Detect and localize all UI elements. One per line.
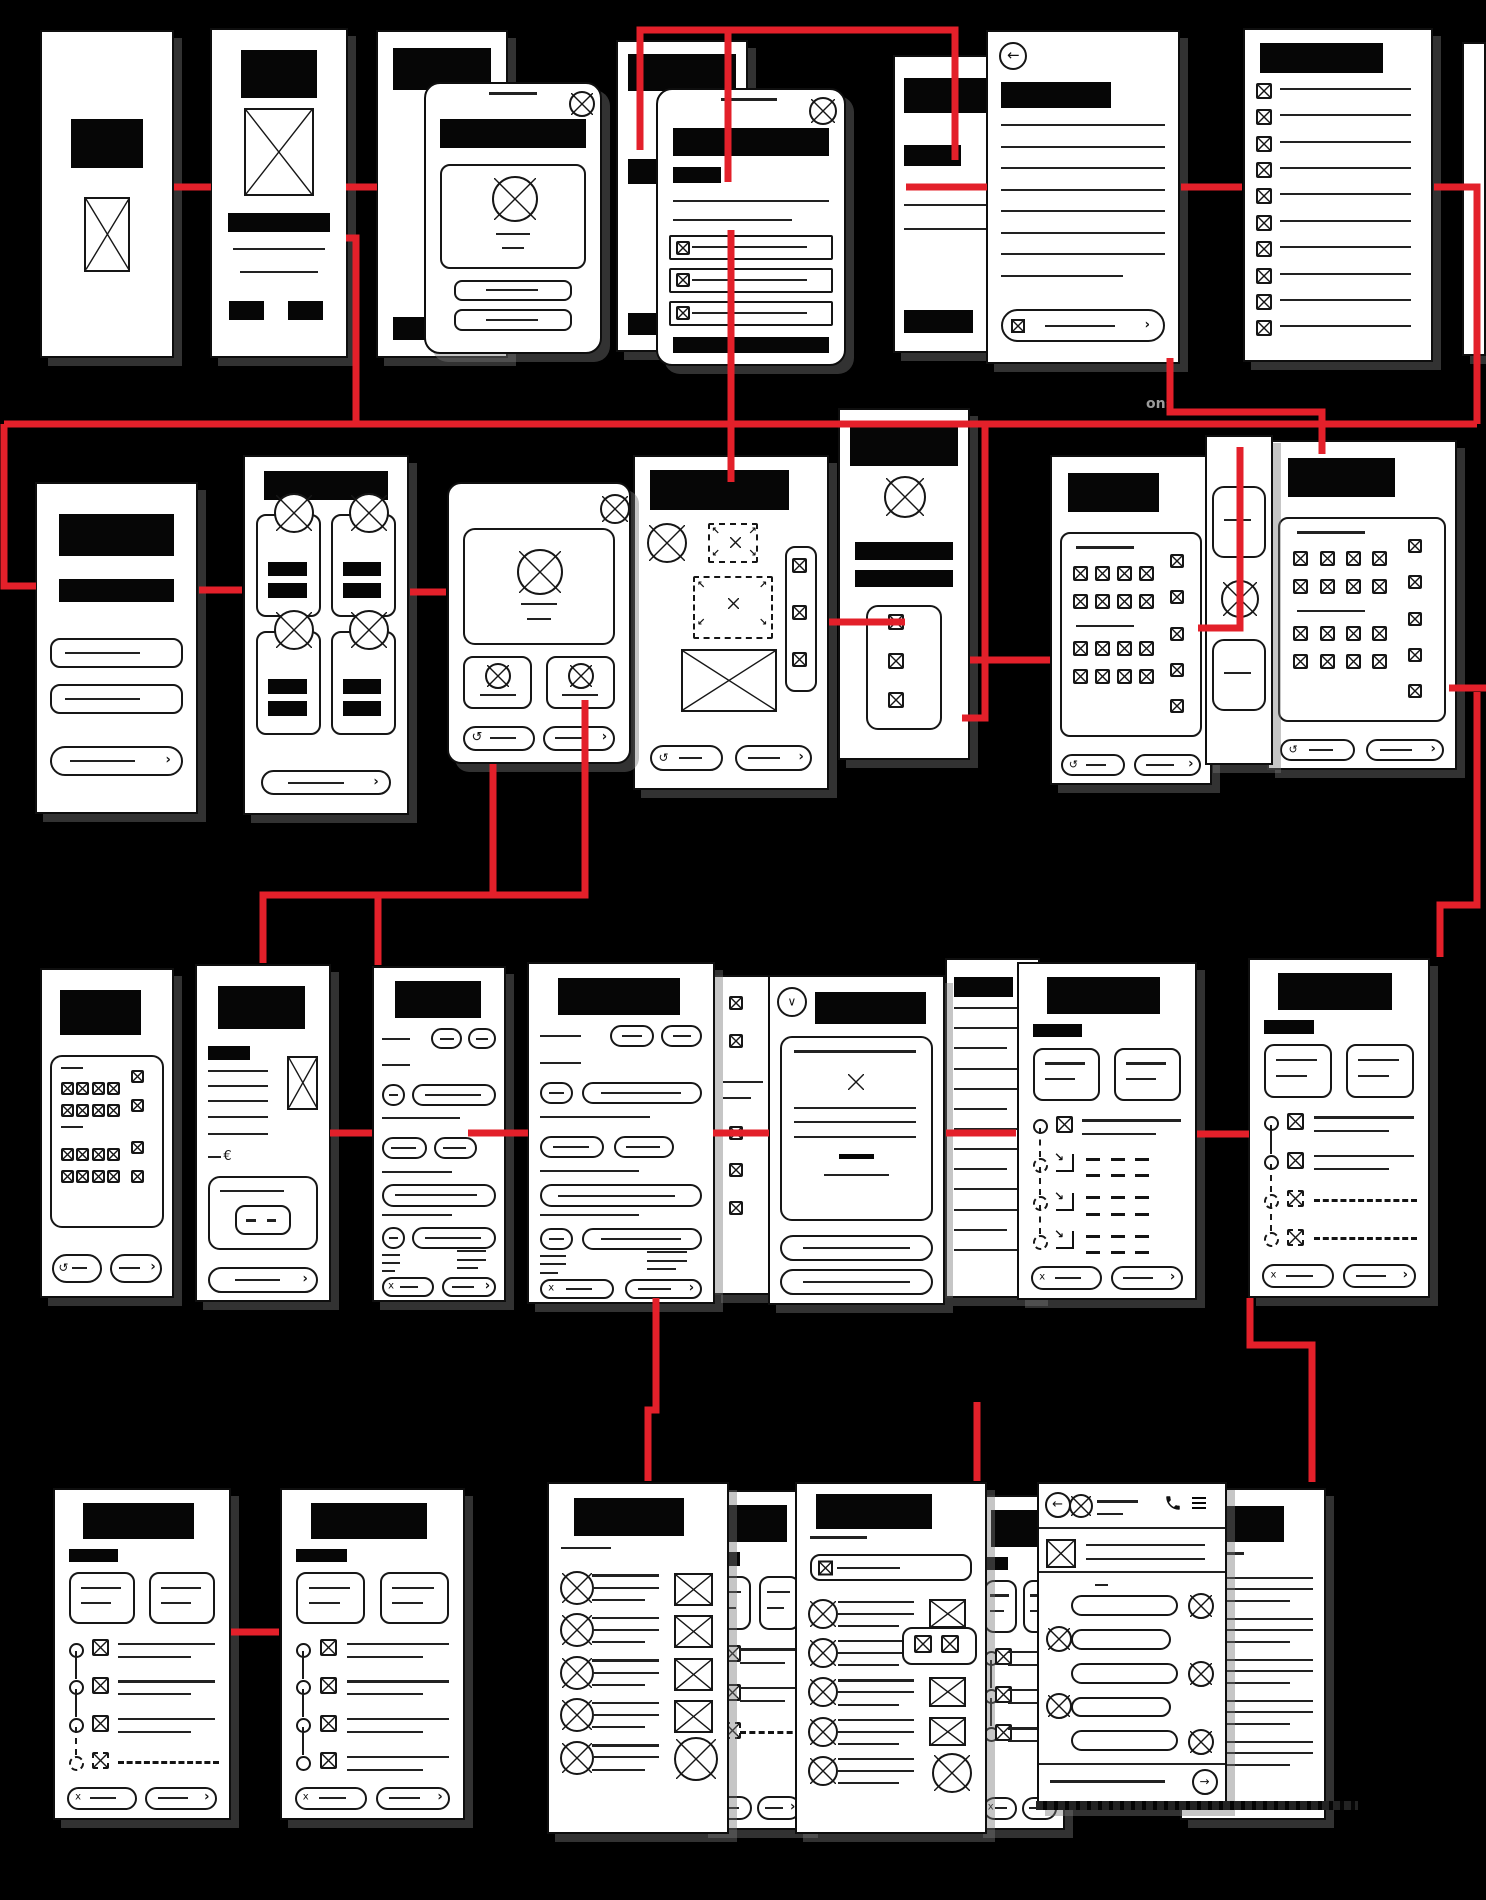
corner-arrow-icon: ↗ (759, 581, 767, 591)
chip-button[interactable] (434, 1137, 477, 1159)
x-mark (109, 1150, 118, 1159)
checkbox-row[interactable] (669, 268, 833, 293)
next-button[interactable]: › (1134, 754, 1200, 777)
x-box-icon (1320, 551, 1335, 566)
text-line (954, 1229, 1007, 1231)
x-mark (1190, 1663, 1212, 1685)
x-mark (289, 1058, 317, 1107)
avatar-icon (808, 1717, 838, 1747)
screen-chat[interactable]: ←→ (1037, 1482, 1227, 1808)
undo-button[interactable]: ↺ (1280, 739, 1354, 762)
x-mark (1348, 656, 1359, 667)
dashed-line (1314, 1199, 1417, 1202)
button-line (601, 1238, 682, 1240)
text-line (794, 1050, 916, 1053)
icon-glyph: ← (1052, 1498, 1063, 1511)
text-line (118, 1680, 215, 1683)
back-icon[interactable]: ← (1045, 1492, 1071, 1518)
screen-stepper-d[interactable]: x› (280, 1488, 465, 1820)
modal-item-preview[interactable]: ↺› (447, 482, 631, 764)
info-card (69, 1572, 135, 1624)
text-line (1001, 146, 1164, 148)
cancel-button[interactable]: x (382, 1277, 434, 1297)
avatar-icon (647, 523, 687, 563)
image-placeholder-icon (929, 1599, 967, 1629)
cancel-button[interactable]: x (295, 1787, 367, 1810)
text-line (838, 1704, 898, 1706)
x-box-icon (729, 1126, 743, 1140)
dash-segment (1135, 1196, 1149, 1199)
black-block (241, 50, 316, 99)
text-line (838, 1782, 898, 1784)
x-mark (1258, 217, 1270, 229)
step-connector (302, 1727, 304, 1755)
x-box-icon (1095, 641, 1110, 656)
screen-icon-grid-small[interactable]: ↺› (40, 968, 174, 1298)
dash-segment (1135, 1213, 1149, 1216)
image-placeholder-icon (929, 1677, 967, 1707)
x-mark (1097, 568, 1108, 579)
step-circle-icon (1264, 1232, 1279, 1247)
x-mark (570, 665, 592, 687)
flow-connector-c29 (648, 1298, 656, 1481)
button-line (622, 1035, 642, 1037)
button-line (486, 319, 539, 321)
send-icon[interactable]: → (1192, 1769, 1218, 1795)
avatar-icon (560, 1613, 594, 1647)
chevron-down-icon[interactable]: ∨ (777, 987, 807, 1017)
x-box-icon (76, 1148, 89, 1161)
cancel-button[interactable]: x (1031, 1266, 1101, 1289)
x-box-icon (818, 1560, 833, 1575)
text-line (954, 1047, 1007, 1049)
x-mark (322, 1717, 335, 1730)
text-line (592, 1672, 660, 1674)
text-line (347, 1643, 448, 1646)
chip-button[interactable] (540, 1228, 573, 1250)
screen-stepper-a[interactable]: ↘↘↘x› (1017, 962, 1197, 1300)
input-field[interactable] (412, 1084, 497, 1106)
avatar-icon (808, 1677, 838, 1707)
image-placeholder-icon (674, 1573, 713, 1606)
button-line (803, 1247, 910, 1249)
drop-zone: ↖↗↙↘ (708, 523, 758, 563)
icon-strip (866, 605, 943, 730)
cta-button[interactable]: › (50, 746, 184, 776)
input-field[interactable] (50, 684, 184, 714)
x-box-icon (1256, 162, 1272, 178)
x-box-icon (1256, 320, 1272, 336)
dash-segment (1086, 1251, 1100, 1254)
undo-button[interactable]: ↺ (52, 1254, 101, 1283)
step-connector (1039, 1205, 1041, 1233)
search-input[interactable] (810, 1554, 972, 1582)
screen-form-a[interactable]: x› (372, 966, 506, 1302)
text-line (1280, 325, 1410, 327)
icon-glyph: x (548, 1284, 554, 1294)
black-block (268, 679, 307, 694)
back-icon[interactable]: ← (999, 42, 1027, 70)
x-mark (934, 1755, 970, 1791)
checkbox-row[interactable] (669, 235, 833, 260)
chip-button[interactable] (614, 1136, 675, 1158)
x-mark (94, 1754, 107, 1767)
text-line (1039, 1571, 1225, 1573)
x-mark (562, 1700, 592, 1730)
screen-catalog[interactable]: › (243, 455, 409, 815)
button-line (679, 757, 702, 759)
screen-profile-strip[interactable] (838, 408, 970, 760)
screen-stepper-c[interactable]: x› (53, 1488, 231, 1820)
button-line (158, 1797, 188, 1799)
chevron-right-icon: › (798, 751, 803, 764)
chevron-right-icon: › (485, 1280, 490, 1293)
text-line (1039, 1527, 1225, 1529)
screen-upload[interactable]: ↖↗↙↘↖↗↙↘↺› (633, 455, 829, 790)
text-line (1082, 1119, 1181, 1122)
black-block (628, 54, 736, 91)
screen-form-b[interactable]: x› (527, 962, 715, 1304)
dash-segment (1086, 1235, 1100, 1238)
text-line (647, 1251, 687, 1253)
button-line (553, 1146, 589, 1148)
black-block (440, 119, 586, 148)
button-line (425, 1237, 481, 1239)
text-line (392, 1602, 423, 1604)
x-mark (1374, 628, 1385, 639)
black-block (343, 679, 382, 694)
text-line (267, 1219, 276, 1222)
chevron-right-icon: › (150, 1261, 155, 1274)
text-line (838, 1691, 913, 1693)
screen-search-results[interactable] (795, 1482, 987, 1834)
screen-contacts-list[interactable] (547, 1482, 729, 1834)
text-line (382, 1270, 395, 1272)
input-field[interactable] (582, 1228, 702, 1250)
text-line (592, 1744, 660, 1747)
black-block (60, 990, 141, 1036)
x-mark (649, 525, 685, 561)
phone-icon[interactable] (1164, 1494, 1182, 1512)
screen-icon-grid-b[interactable]: ↺› (1267, 440, 1457, 770)
x-mark (487, 665, 509, 687)
text-line (382, 1038, 411, 1040)
button-line (748, 757, 780, 759)
x-mark (1172, 665, 1182, 675)
text-line (990, 1594, 1008, 1597)
screen-checklist[interactable] (1243, 28, 1433, 362)
chip-button[interactable] (610, 1025, 654, 1047)
next-button[interactable]: › (376, 1787, 450, 1810)
x-box-icon (1320, 626, 1335, 641)
black-block (268, 583, 307, 598)
chip-button[interactable] (540, 1136, 604, 1158)
text-line (1276, 1075, 1307, 1077)
x-mark (109, 1172, 118, 1181)
next-button[interactable]: › (1343, 1264, 1416, 1288)
x-box-icon (676, 241, 690, 255)
menu-icon[interactable] (1192, 1497, 1206, 1510)
x-mark (351, 612, 387, 648)
x-mark (1058, 1118, 1071, 1131)
x-mark (1322, 656, 1333, 667)
x-mark (890, 616, 902, 628)
x-mark (1374, 656, 1385, 667)
text-line (1097, 1500, 1138, 1503)
x-mark (1258, 243, 1270, 255)
avatar-icon (492, 176, 538, 222)
cta-button[interactable]: › (1001, 309, 1164, 342)
x-mark (1075, 671, 1086, 682)
text-line (1001, 167, 1164, 169)
x-mark (94, 1106, 103, 1115)
x-box-icon (1256, 215, 1272, 231)
black-block (228, 213, 330, 233)
screen-stepper-b[interactable]: x› (1248, 958, 1430, 1298)
cancel-button[interactable]: x (983, 1797, 1017, 1820)
x-mark (602, 496, 628, 522)
button-line (803, 1281, 910, 1283)
info-card (759, 1576, 799, 1630)
corner-arrow-icon: ↘ (749, 549, 757, 559)
x-box-icon (1095, 594, 1110, 609)
modal-options-list[interactable] (656, 88, 846, 366)
x-mark (1348, 581, 1359, 592)
x-box-icon (1293, 551, 1308, 566)
dashed-line (118, 1761, 219, 1764)
x-mark (731, 998, 741, 1008)
text-line (810, 1536, 866, 1539)
text-line (592, 1659, 660, 1662)
screen-splash[interactable] (40, 30, 174, 358)
x-mark-icon (730, 537, 741, 548)
x-box-icon (61, 1170, 74, 1183)
black-block (574, 1498, 684, 1536)
x-box-icon (1408, 684, 1422, 698)
x-box-icon (1287, 1190, 1304, 1207)
x-mark (916, 1637, 930, 1651)
x-mark (1075, 643, 1086, 654)
step-connector (1039, 1167, 1041, 1195)
text-line (208, 1100, 269, 1102)
dash-segment (1111, 1196, 1125, 1199)
x-box-icon (131, 1070, 144, 1083)
next-button[interactable]: › (110, 1254, 162, 1283)
x-mark (322, 1641, 335, 1654)
text-line (1039, 1763, 1225, 1765)
screen-onboarding[interactable] (210, 28, 348, 358)
button-line (638, 1288, 670, 1290)
chip-button[interactable] (661, 1025, 701, 1047)
input-field[interactable] (582, 1082, 702, 1104)
chip-button[interactable] (540, 1082, 573, 1104)
side-strip (785, 546, 818, 692)
chat-bubble (1071, 1663, 1179, 1684)
secondary-button[interactable] (780, 1269, 932, 1295)
next-button[interactable]: › (1366, 739, 1444, 762)
black-block (343, 701, 382, 716)
black-block (59, 579, 173, 602)
icon-glyph: → (1199, 1775, 1209, 1787)
option-card[interactable] (463, 656, 531, 709)
button-line (452, 1286, 474, 1288)
menu-bar (1192, 1507, 1206, 1510)
avatar-icon (808, 1599, 838, 1629)
info-card (296, 1572, 365, 1624)
button-line (995, 1807, 1007, 1809)
chevron-right-icon: › (602, 731, 607, 744)
next-button[interactable]: › (442, 1277, 497, 1297)
chevron-right-icon: › (689, 1282, 694, 1295)
cancel-button[interactable]: x (1262, 1264, 1333, 1288)
next-button[interactable]: › (735, 745, 812, 771)
pay-button[interactable]: › (208, 1267, 319, 1294)
step-connector (1270, 1164, 1272, 1193)
screen-edge-sliver[interactable] (1462, 42, 1486, 356)
x-mark (794, 654, 805, 665)
text-line (1126, 1062, 1166, 1065)
screen-invoice[interactable]: €› (195, 964, 331, 1302)
text-line (824, 1174, 889, 1176)
dash-segment (1111, 1158, 1125, 1161)
x-box-icon (1287, 1113, 1304, 1130)
input-field[interactable] (454, 309, 572, 330)
undo-button[interactable]: ↺ (463, 726, 535, 751)
text-line (1314, 1155, 1414, 1158)
x-mark (820, 1562, 831, 1573)
black-block (816, 1494, 933, 1529)
text-line (118, 1656, 191, 1658)
x-box-icon (1056, 1116, 1073, 1133)
x-box-icon (1095, 566, 1110, 581)
text-line (592, 1641, 645, 1643)
text-line (540, 1116, 650, 1118)
x-box-icon (76, 1104, 89, 1117)
text-line (740, 1700, 785, 1702)
x-box-icon (1287, 1229, 1304, 1246)
chip-button[interactable] (468, 1028, 497, 1050)
x-box-icon (1170, 663, 1184, 677)
close-icon[interactable] (809, 97, 837, 125)
x-mark (676, 1739, 716, 1779)
chip-button[interactable] (431, 1028, 462, 1050)
avatar-icon (517, 549, 563, 595)
checkbox-row[interactable] (669, 301, 833, 326)
icon-glyph: x (303, 1793, 309, 1803)
button-line (1146, 764, 1173, 766)
x-mark (1258, 296, 1270, 308)
x-mark (1258, 111, 1270, 123)
input-field[interactable] (412, 1227, 497, 1249)
text-line (838, 1758, 913, 1761)
x-mark (94, 1150, 103, 1159)
input-field[interactable] (50, 638, 184, 668)
text-line (1001, 253, 1164, 255)
button-line (391, 1147, 416, 1149)
x-box-icon (1011, 319, 1025, 333)
text-line (382, 1254, 400, 1256)
x-mark (94, 1679, 107, 1692)
input-field[interactable] (454, 280, 572, 301)
close-icon[interactable] (600, 494, 630, 524)
x-mark (810, 1640, 836, 1666)
x-box-icon (131, 1099, 144, 1112)
button-line (1286, 1275, 1313, 1277)
screen-article-detail[interactable]: ←› (986, 30, 1180, 364)
x-box-icon (1256, 136, 1272, 152)
amount-box[interactable] (235, 1205, 291, 1236)
screen-login[interactable]: › (35, 482, 198, 814)
close-icon[interactable] (569, 91, 595, 117)
text-line (309, 1587, 350, 1590)
x-box-icon (320, 1677, 337, 1694)
x-box-icon (1408, 648, 1422, 662)
next-button[interactable]: › (625, 1279, 702, 1299)
text-line (502, 247, 525, 249)
x-box-icon (1117, 566, 1132, 581)
x-mark (133, 1072, 142, 1081)
button-line (443, 1147, 466, 1149)
x-mark (678, 275, 688, 285)
text-line (1314, 1168, 1389, 1170)
x-mark (78, 1150, 87, 1159)
x-mark (1190, 1595, 1212, 1617)
screen-grid-sliver[interactable] (713, 975, 773, 1295)
next-button[interactable]: › (543, 726, 615, 751)
text-line (1076, 625, 1134, 628)
x-mark (811, 99, 835, 123)
screen-confirm-card[interactable]: ∨ (768, 975, 945, 1305)
input-field[interactable] (382, 1184, 496, 1207)
chip-button[interactable] (382, 1137, 428, 1159)
chip-button[interactable] (382, 1227, 405, 1249)
x-mark (519, 551, 561, 593)
x-mark (1348, 553, 1359, 564)
undo-button[interactable]: ↺ (650, 745, 723, 771)
text-line (540, 1062, 580, 1064)
modal-profile-setup[interactable] (424, 82, 602, 354)
screen-icon-grid-a[interactable]: ↺› (1050, 455, 1212, 785)
screen-mini-strip[interactable] (1205, 435, 1273, 765)
chevron-right-icon: › (1170, 1270, 1175, 1283)
avatar-icon (485, 663, 511, 689)
cancel-button[interactable]: x (540, 1279, 614, 1299)
black-block (673, 128, 829, 155)
x-box-icon (1170, 554, 1184, 568)
icon-glyph: x (1271, 1270, 1277, 1280)
text-line (118, 1693, 191, 1695)
undo-button[interactable]: ↺ (1061, 754, 1124, 777)
primary-button[interactable] (780, 1235, 932, 1261)
option-card[interactable] (546, 656, 614, 709)
x-mark (562, 1615, 592, 1645)
text-line (838, 1770, 913, 1772)
dash-segment (1135, 1174, 1149, 1177)
x-box-icon (676, 273, 690, 287)
next-button[interactable]: › (145, 1787, 216, 1810)
chip-button[interactable] (382, 1084, 405, 1106)
x-mark (109, 1106, 118, 1115)
cancel-button[interactable]: x (67, 1787, 137, 1810)
x-box-icon (61, 1148, 74, 1161)
text-line (1050, 1780, 1165, 1783)
avatar-icon (560, 1741, 594, 1775)
next-button[interactable]: › (1111, 1266, 1183, 1289)
text-line (382, 1214, 452, 1216)
black-block (954, 977, 1012, 997)
cta-button[interactable]: › (261, 770, 391, 795)
input-field[interactable] (540, 1184, 702, 1208)
